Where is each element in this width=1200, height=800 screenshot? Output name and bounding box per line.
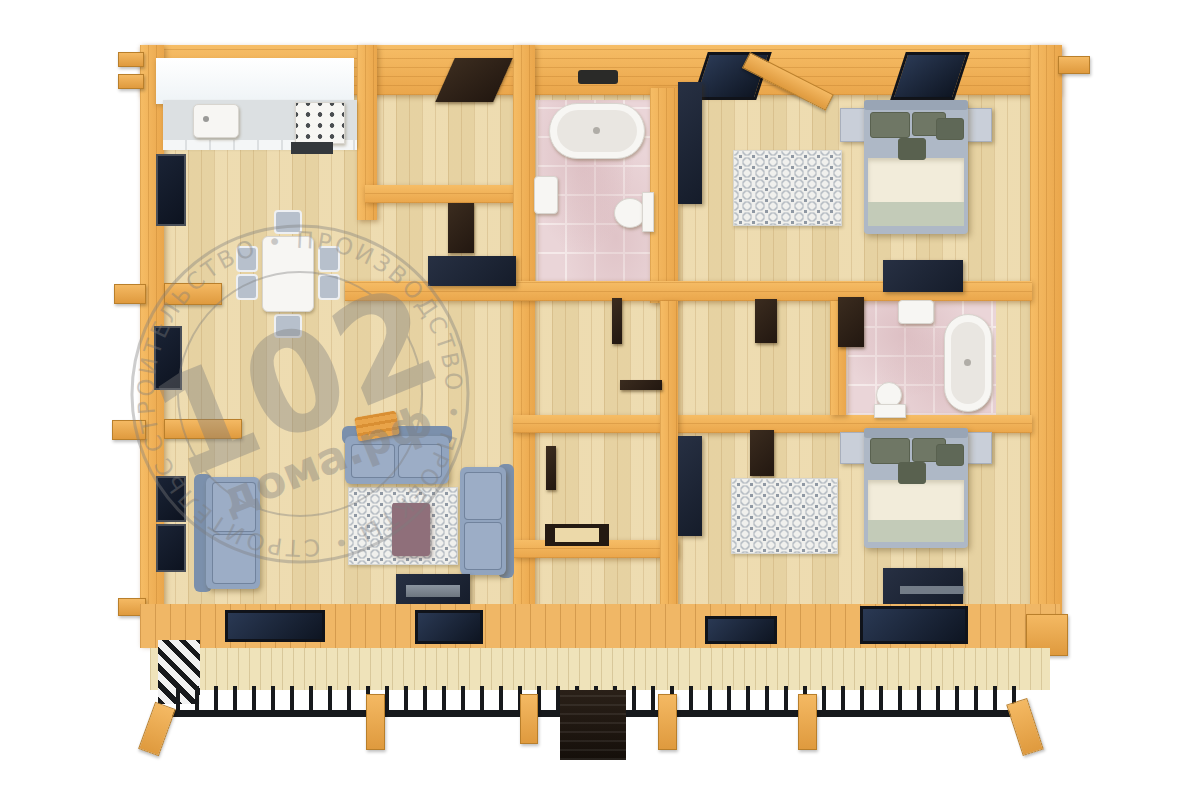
tv-screen <box>406 585 460 597</box>
bed1-nightstand-right <box>966 108 992 142</box>
dining-table <box>262 236 314 312</box>
tie-beam-1 <box>164 283 222 305</box>
bathtub-2-drain <box>964 359 971 366</box>
bed2-pillow-1 <box>870 438 910 464</box>
log-end-top-left-2 <box>118 74 144 89</box>
hall-door-2 <box>620 380 662 390</box>
sofa-top-cushion-2 <box>398 444 442 478</box>
sofa-left <box>194 474 260 592</box>
wall-corridor-left <box>513 45 535 612</box>
bathroom2-sink <box>898 300 934 324</box>
bed2-nightstand-left <box>840 432 866 464</box>
right-exterior-wall <box>1030 45 1062 645</box>
kitchen-faucet <box>203 116 209 122</box>
toilet-1-tank <box>642 192 654 232</box>
dining-chair-bottom <box>274 314 302 338</box>
dining-chair-left-2 <box>236 274 258 300</box>
bed1-pillow-3 <box>936 118 964 140</box>
tie-beam-2 <box>164 419 242 439</box>
bed2-pillow-3 <box>936 444 964 466</box>
log-end-left-1 <box>114 284 146 304</box>
dining-chair-right-2 <box>318 274 340 300</box>
entrance-steps <box>560 690 626 760</box>
floor-hatch <box>545 524 609 546</box>
roof-vent <box>578 70 618 84</box>
kitchen-sink <box>193 104 239 138</box>
foundation-beam-1 <box>138 702 176 757</box>
sofa-left-cushion-2 <box>212 534 256 584</box>
left-wall-window-3a <box>156 476 186 522</box>
study-desk <box>428 256 516 286</box>
bed2-duvet <box>868 480 964 522</box>
bed2-headboard <box>864 428 968 438</box>
kitchen-hood <box>291 142 333 154</box>
sofa-right-cushion-2 <box>464 522 502 570</box>
kitchen-counter-group <box>163 98 357 152</box>
foundation-beam-3 <box>520 694 538 744</box>
dining-set <box>236 210 340 338</box>
bedroom1-dresser <box>883 260 963 292</box>
hall-door-1 <box>612 298 622 344</box>
bed1-headboard <box>864 100 968 110</box>
bed2-pillow-4 <box>898 462 926 484</box>
bed2-nightstand-right <box>966 432 992 464</box>
coffee-table <box>392 503 430 556</box>
bedroom2-rug <box>731 478 838 554</box>
front-wall-face <box>150 648 1050 690</box>
dining-chair-left-1 <box>236 246 258 272</box>
bed1-pillow-4 <box>898 138 926 160</box>
foundation-beam-5 <box>798 694 817 750</box>
foundation-beam-4 <box>658 694 677 750</box>
study-door-open <box>448 203 474 253</box>
sofa-right-cushion-1 <box>464 472 502 520</box>
foundation-beam-6 <box>1006 698 1044 756</box>
left-wall-window-1 <box>156 154 186 226</box>
log-end-top-right <box>1058 56 1090 74</box>
bed2-foot-blanket <box>868 520 964 542</box>
bedroom1-door-open <box>755 299 777 343</box>
log-end-top-left-1 <box>118 52 144 67</box>
wall-bathroom1-right <box>650 88 678 303</box>
bedroom2-dresser-glass-top <box>900 586 964 594</box>
floor-plan-render: СТРОИТЕЛЬСТВО • ПРОИЗВОДСТВО • ПРОЕКТЫ •… <box>0 0 1200 800</box>
bed-1 <box>840 100 992 236</box>
bathtub-1-drain <box>593 127 600 134</box>
bathtub-2 <box>944 314 992 412</box>
sofa-left-cushion-1 <box>212 482 256 532</box>
log-end-left-2 <box>112 420 146 440</box>
bed1-pillow-1 <box>870 112 910 138</box>
deck-glass-1 <box>225 610 325 642</box>
dining-chair-top <box>274 210 302 234</box>
sofa-right <box>460 464 514 578</box>
floor-hatch-inner <box>555 528 599 542</box>
bedroom2-wardrobe <box>678 436 702 536</box>
wall-entry-divider <box>365 185 513 203</box>
sofa-top-cushion-1 <box>351 444 395 478</box>
toilet-2-tank <box>874 404 906 418</box>
bedroom1-wardrobe <box>678 82 702 204</box>
hall-door-3 <box>546 446 556 490</box>
bed1-duvet <box>868 158 964 204</box>
bed-2 <box>840 428 992 550</box>
bedroom1-rug <box>733 150 842 226</box>
deck-glass-3 <box>705 616 777 644</box>
left-wall-window-3b <box>156 524 186 572</box>
bathroom1-sink <box>534 176 558 214</box>
kitchen-stove <box>295 102 345 144</box>
dining-chair-right-1 <box>318 246 340 272</box>
deck-glass-2 <box>415 610 483 644</box>
bathroom2-cabinet <box>838 297 864 347</box>
wall-corridor-right <box>660 301 678 612</box>
foundation-beam-2 <box>366 694 385 750</box>
deck-glass-4 <box>860 606 968 644</box>
bed1-nightstand-left <box>840 108 866 142</box>
bed1-foot-blanket <box>868 202 964 226</box>
bedroom2-door-open <box>750 430 774 476</box>
left-wall-window-2 <box>154 326 182 390</box>
bathtub-1 <box>549 103 645 159</box>
